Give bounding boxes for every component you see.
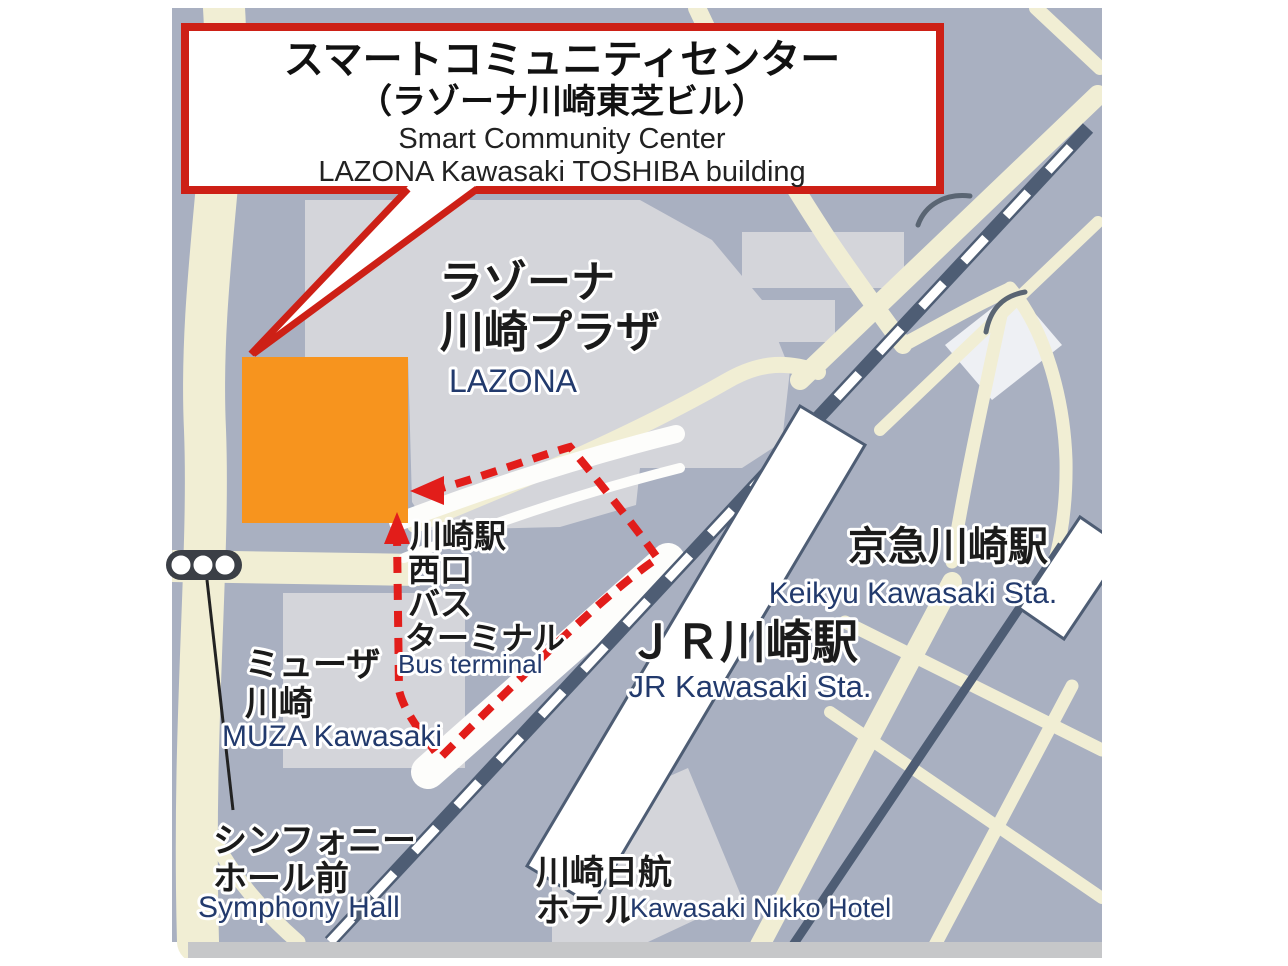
label-jr-station-en: JR Kawasaki Sta. [629, 669, 872, 704]
kawasaki-access-map: スマートコミュニティセンター （ラゾーナ川崎東芝ビル） Smart Commun… [0, 0, 1288, 966]
label-muza-ja1: ミューザ [245, 646, 380, 684]
label-muza-ja2: 川崎 [245, 685, 313, 723]
label-bus-terminal-ja3: バス [408, 586, 472, 622]
callout-box: スマートコミュニティセンター （ラゾーナ川崎東芝ビル） Smart Commun… [185, 27, 940, 190]
callout-title-ja: スマートコミュニティセンター [284, 38, 840, 82]
traffic-light-lamp [193, 555, 214, 576]
callout-title-en: Smart Community Center [398, 123, 725, 155]
traffic-light-lamp [215, 555, 236, 576]
label-bus-terminal-ja1: 川崎駅 [410, 518, 506, 554]
label-nikko-ja1: 川崎日航 [536, 853, 672, 892]
label-lazona-ja2: 川崎プラザ [440, 308, 660, 357]
label-lazona-ja1: ラゾーナ [439, 258, 615, 307]
margin-right [1102, 0, 1288, 966]
label-keikyu-station-en: Keikyu Kawasaki Sta. [769, 577, 1057, 610]
label-nikko-en: Kawasaki Nikko Hotel [630, 893, 891, 923]
building-block [755, 300, 835, 342]
callout-subtitle-en: LAZONA Kawasaki TOSHIBA building [318, 156, 805, 188]
label-lazona-en: LAZONA [449, 363, 578, 399]
label-bus-terminal-ja2: 西口 [408, 552, 472, 588]
traffic-light-lamp [171, 555, 192, 576]
bottom-road-band [188, 942, 1102, 958]
label-jr-station-ja: ＪＲ川崎駅 [628, 616, 858, 668]
smart-community-center-building [242, 357, 408, 523]
callout-subtitle-ja: （ラゾーナ川崎東芝ビル） [358, 82, 766, 121]
margin-top [0, 0, 1288, 8]
margin-bottom [0, 958, 1288, 966]
label-nikko-ja2: ホテル [536, 892, 638, 930]
label-muza-en: MUZA Kawasaki [222, 720, 442, 753]
label-bus-terminal-en: Bus terminal [398, 649, 543, 679]
margin-left [0, 0, 172, 966]
traffic-light-icon [166, 550, 242, 580]
label-symphony-en: Symphony Hall [198, 891, 400, 924]
label-symphony-ja1: シンフォニー [213, 822, 416, 860]
label-keikyu-station-ja: 京急川崎駅 [848, 525, 1048, 569]
map-canvas: スマートコミュニティセンター （ラゾーナ川崎東芝ビル） Smart Commun… [0, 0, 1288, 966]
